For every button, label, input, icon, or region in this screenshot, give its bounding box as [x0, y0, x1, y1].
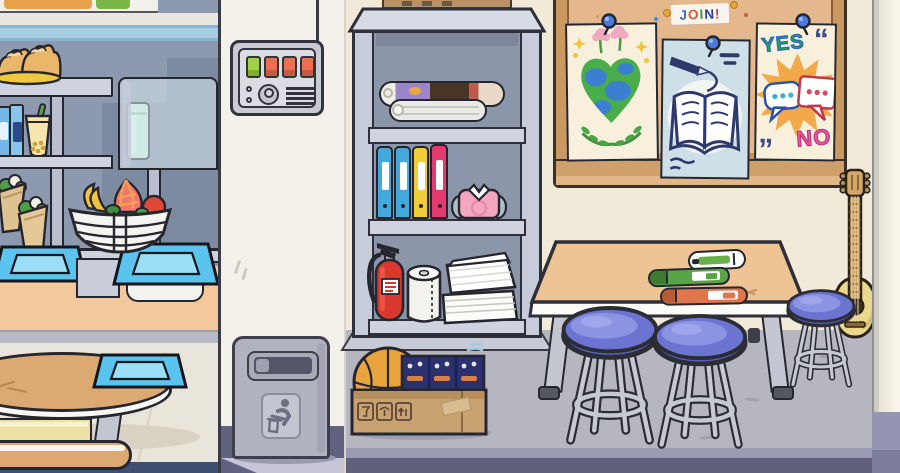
- trash-sticker: [261, 393, 301, 439]
- yes-no-poster[interactable]: “ „ YES NO: [754, 22, 837, 161]
- quote-mark: “: [813, 23, 828, 57]
- earth-poster[interactable]: [565, 22, 659, 161]
- panel-led: [246, 86, 252, 92]
- box-front: [352, 390, 486, 434]
- panel-button-red[interactable]: [282, 56, 297, 78]
- wrap-sandwiches[interactable]: [0, 166, 56, 256]
- blue-pushpin: [600, 13, 618, 37]
- folded-shirt[interactable]: [451, 183, 507, 221]
- binder-yellow[interactable]: [412, 146, 429, 219]
- binder-blue[interactable]: [394, 146, 411, 219]
- book-poster[interactable]: [660, 39, 750, 180]
- control-panel[interactable]: [230, 40, 324, 116]
- right-wall-strip: [879, 0, 900, 415]
- supply-cabinet[interactable]: [352, 30, 542, 338]
- panel-knob[interactable]: [258, 84, 279, 105]
- join-letter: N: [704, 6, 715, 21]
- bulletin-board[interactable]: JOIN!: [553, 0, 847, 188]
- join-sign[interactable]: JOIN!: [671, 3, 730, 25]
- blue-pushpin: [794, 13, 812, 37]
- no-label: NO: [795, 124, 832, 152]
- panel-led: [246, 97, 252, 103]
- panel-button-red[interactable]: [264, 56, 279, 78]
- paper-stacks[interactable]: [439, 247, 521, 327]
- paper-towel-roll[interactable]: [405, 263, 443, 327]
- fruit-bowl[interactable]: [68, 174, 172, 254]
- green-marker[interactable]: [648, 267, 731, 288]
- orange-marker[interactable]: [660, 286, 748, 306]
- orange-pin: [663, 9, 671, 17]
- stool[interactable]: [558, 306, 662, 452]
- game-scene: JOIN!: [0, 0, 900, 473]
- bubble-tea-cup[interactable]: [22, 104, 54, 162]
- trash-can[interactable]: [232, 336, 330, 459]
- orange-pin: [730, 1, 738, 9]
- litter-person-icon: [264, 396, 298, 436]
- binder-pink[interactable]: [430, 144, 448, 219]
- cabinet-shelf: [368, 127, 526, 144]
- trash-slot[interactable]: [247, 351, 319, 381]
- floor-baseboard: [346, 458, 874, 473]
- stool[interactable]: [650, 314, 750, 456]
- glass-display-case: [118, 77, 218, 170]
- panel-button-green[interactable]: [246, 56, 261, 78]
- wall-trim-cream: [0, 13, 218, 25]
- stool[interactable]: [786, 262, 856, 420]
- wall-corner-edge: [872, 0, 879, 415]
- join-letter: !: [715, 6, 721, 21]
- right-baseboard: [872, 412, 900, 450]
- blue-pushpin: [704, 35, 722, 59]
- front-bench[interactable]: [0, 440, 132, 470]
- join-letter: O: [688, 7, 700, 22]
- food-picture-frame: [0, 0, 158, 13]
- right-baseboard-dark: [872, 450, 900, 473]
- control-panel-wire: [316, 0, 319, 44]
- blue-tray-on-table[interactable]: [92, 352, 188, 392]
- cardboard-box[interactable]: [350, 342, 490, 438]
- table-foot: [538, 386, 560, 400]
- bread-loaves-plate[interactable]: [0, 38, 66, 84]
- binder-blue[interactable]: [376, 146, 393, 219]
- cabinet-shelf: [368, 219, 526, 236]
- panel-button-red[interactable]: [300, 56, 315, 78]
- counter-base: [0, 330, 218, 343]
- rolled-mat[interactable]: [389, 99, 487, 122]
